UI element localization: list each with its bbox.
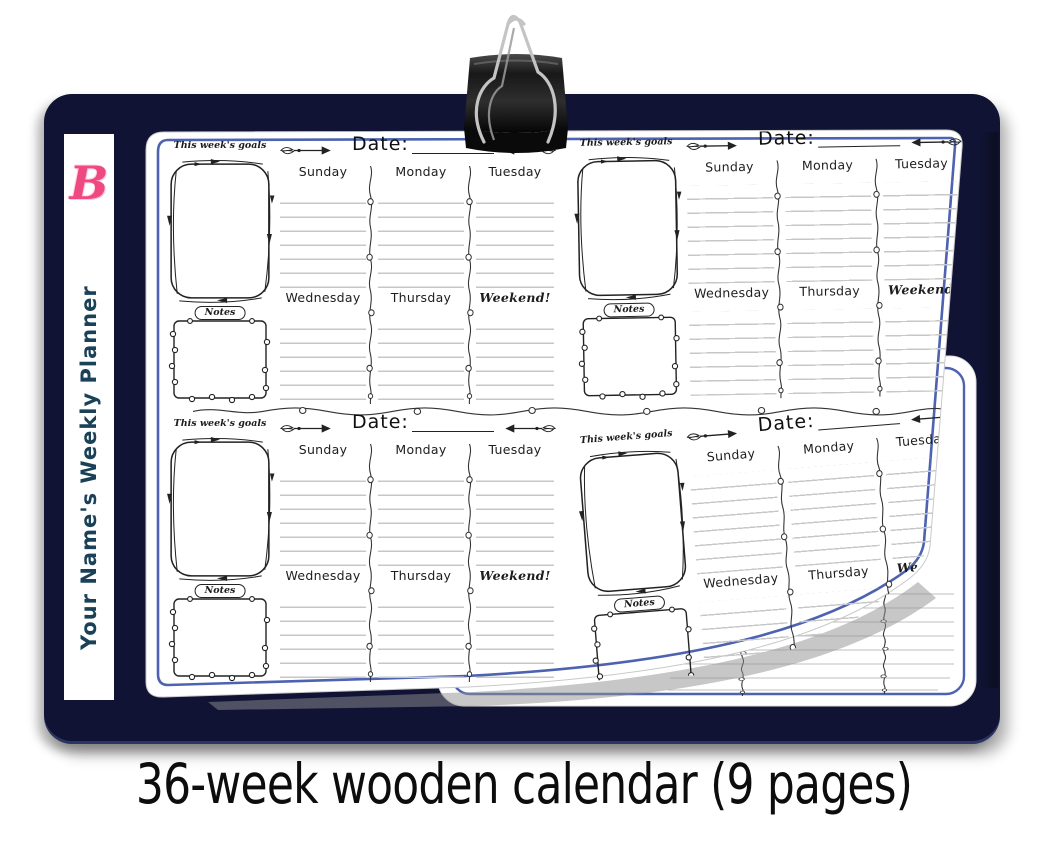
notes-label: Notes bbox=[195, 306, 246, 320]
day-column: Monday bbox=[376, 442, 466, 568]
day-column: Wednesday bbox=[278, 568, 368, 684]
weekend-column: Weekend! bbox=[474, 568, 556, 684]
day-column: Sunday bbox=[278, 164, 368, 290]
day-column: Monday bbox=[376, 164, 466, 290]
notes-box-border bbox=[573, 308, 687, 404]
week-block: This week's goals Date: Notes Sunday Mon… bbox=[164, 418, 556, 684]
day-column: Wednesday bbox=[278, 290, 368, 406]
ruled-lines bbox=[280, 316, 366, 400]
ruled-lines bbox=[378, 468, 464, 566]
goals-label: This week's goals bbox=[164, 418, 276, 429]
spine-title: Your Name's Weekly Planner bbox=[77, 222, 101, 700]
day-header: Wednesday bbox=[278, 568, 368, 588]
feather-arrow-right-icon bbox=[280, 144, 338, 157]
day-column: Thursday bbox=[785, 283, 877, 401]
notes-box: Notes bbox=[573, 308, 687, 404]
notes-box-border bbox=[164, 590, 276, 684]
day-header: Weekend! bbox=[474, 568, 556, 588]
day-header: Sunday bbox=[278, 442, 368, 462]
week-block: This week's goals Date: Notes Sunday Mon… bbox=[570, 131, 967, 404]
date-fill-in-line bbox=[412, 431, 494, 432]
day-header: Monday bbox=[783, 436, 874, 463]
feather-arrow-right-icon bbox=[686, 426, 745, 444]
day-column: Tuesday bbox=[474, 442, 556, 568]
day-column: Thursday bbox=[376, 568, 466, 684]
day-column: Monday bbox=[783, 436, 883, 569]
ruled-lines bbox=[280, 594, 366, 678]
column-divider-squiggle bbox=[465, 166, 474, 404]
day-column: Tuesday bbox=[474, 164, 556, 290]
day-column: Sunday bbox=[684, 158, 776, 286]
week-block: This week's goals Date: Notes Sunday Mon… bbox=[164, 140, 556, 406]
day-header: Wednesday bbox=[278, 290, 368, 310]
notes-box-border bbox=[164, 312, 276, 406]
goals-label: This week's goals bbox=[570, 136, 682, 149]
day-header: Monday bbox=[782, 157, 872, 179]
day-header: Tuesday bbox=[474, 442, 556, 462]
day-header: Sunday bbox=[278, 164, 368, 184]
ruled-lines bbox=[280, 190, 366, 288]
day-header: Monday bbox=[376, 442, 466, 462]
ruled-lines bbox=[378, 316, 464, 400]
feather-arrow-left-icon bbox=[904, 135, 962, 149]
day-header: Thursday bbox=[785, 283, 875, 305]
day-column: Sunday bbox=[278, 442, 368, 568]
planner-page-stack: This week's goals Date: Notes Sunday Mon… bbox=[138, 126, 986, 714]
day-header: Tuesday bbox=[880, 155, 962, 176]
ruled-lines bbox=[690, 470, 783, 574]
ruled-lines bbox=[378, 594, 464, 678]
notes-box: Notes bbox=[164, 590, 276, 684]
day-header: Weekend! bbox=[474, 290, 556, 310]
ruled-lines bbox=[476, 468, 554, 566]
day-column: Wednesday bbox=[687, 284, 779, 402]
date-label: Date: bbox=[352, 133, 409, 155]
day-column: Monday bbox=[782, 157, 874, 285]
ruled-lines bbox=[280, 468, 366, 566]
day-header: Tuesday bbox=[474, 164, 556, 184]
day-header: Thursday bbox=[376, 290, 466, 310]
day-header: Wednesday bbox=[687, 284, 777, 306]
binder-clip-icon bbox=[450, 2, 582, 162]
ruled-lines bbox=[787, 309, 874, 394]
goals-label: This week's goals bbox=[164, 140, 276, 151]
product-caption: 36-week wooden calendar (9 pages) bbox=[105, 752, 943, 816]
notes-label: Notes bbox=[195, 584, 246, 598]
ruled-lines bbox=[476, 316, 554, 400]
weekly-goals-box bbox=[164, 155, 276, 307]
notes-box: Notes bbox=[164, 312, 276, 406]
brand-logo-icon: B bbox=[70, 144, 109, 222]
ruled-lines bbox=[883, 181, 963, 280]
weekend-column: Weekend! bbox=[474, 290, 556, 406]
feather-arrow-right-icon bbox=[280, 422, 338, 435]
weekly-goals-box bbox=[164, 433, 276, 585]
ruled-lines bbox=[476, 190, 554, 288]
day-header: Sunday bbox=[684, 158, 774, 180]
date-label: Date: bbox=[757, 410, 815, 436]
weekly-goals-box bbox=[571, 442, 695, 602]
ruled-lines bbox=[687, 184, 775, 283]
day-header: Thursday bbox=[376, 568, 466, 588]
feather-arrow-right-icon bbox=[686, 139, 744, 153]
spine-strip: B Your Name's Weekly Planner bbox=[64, 134, 114, 700]
ruled-lines bbox=[785, 183, 873, 282]
day-header: Monday bbox=[376, 164, 466, 184]
date-label: Date: bbox=[352, 411, 409, 433]
weekly-goals-box bbox=[570, 151, 685, 305]
day-header: Sunday bbox=[686, 444, 777, 471]
column-divider-squiggle bbox=[465, 444, 474, 682]
ruled-lines bbox=[378, 190, 464, 288]
ruled-lines bbox=[689, 310, 776, 395]
ruled-lines bbox=[476, 594, 554, 678]
date-fill-in-line bbox=[818, 423, 900, 430]
date-fill-in-line bbox=[818, 145, 900, 147]
day-column: Thursday bbox=[376, 290, 466, 406]
notes-label: Notes bbox=[603, 303, 654, 318]
ruled-lines bbox=[787, 462, 880, 566]
day-column: Sunday bbox=[686, 444, 786, 577]
feather-arrow-left-icon bbox=[498, 422, 556, 435]
